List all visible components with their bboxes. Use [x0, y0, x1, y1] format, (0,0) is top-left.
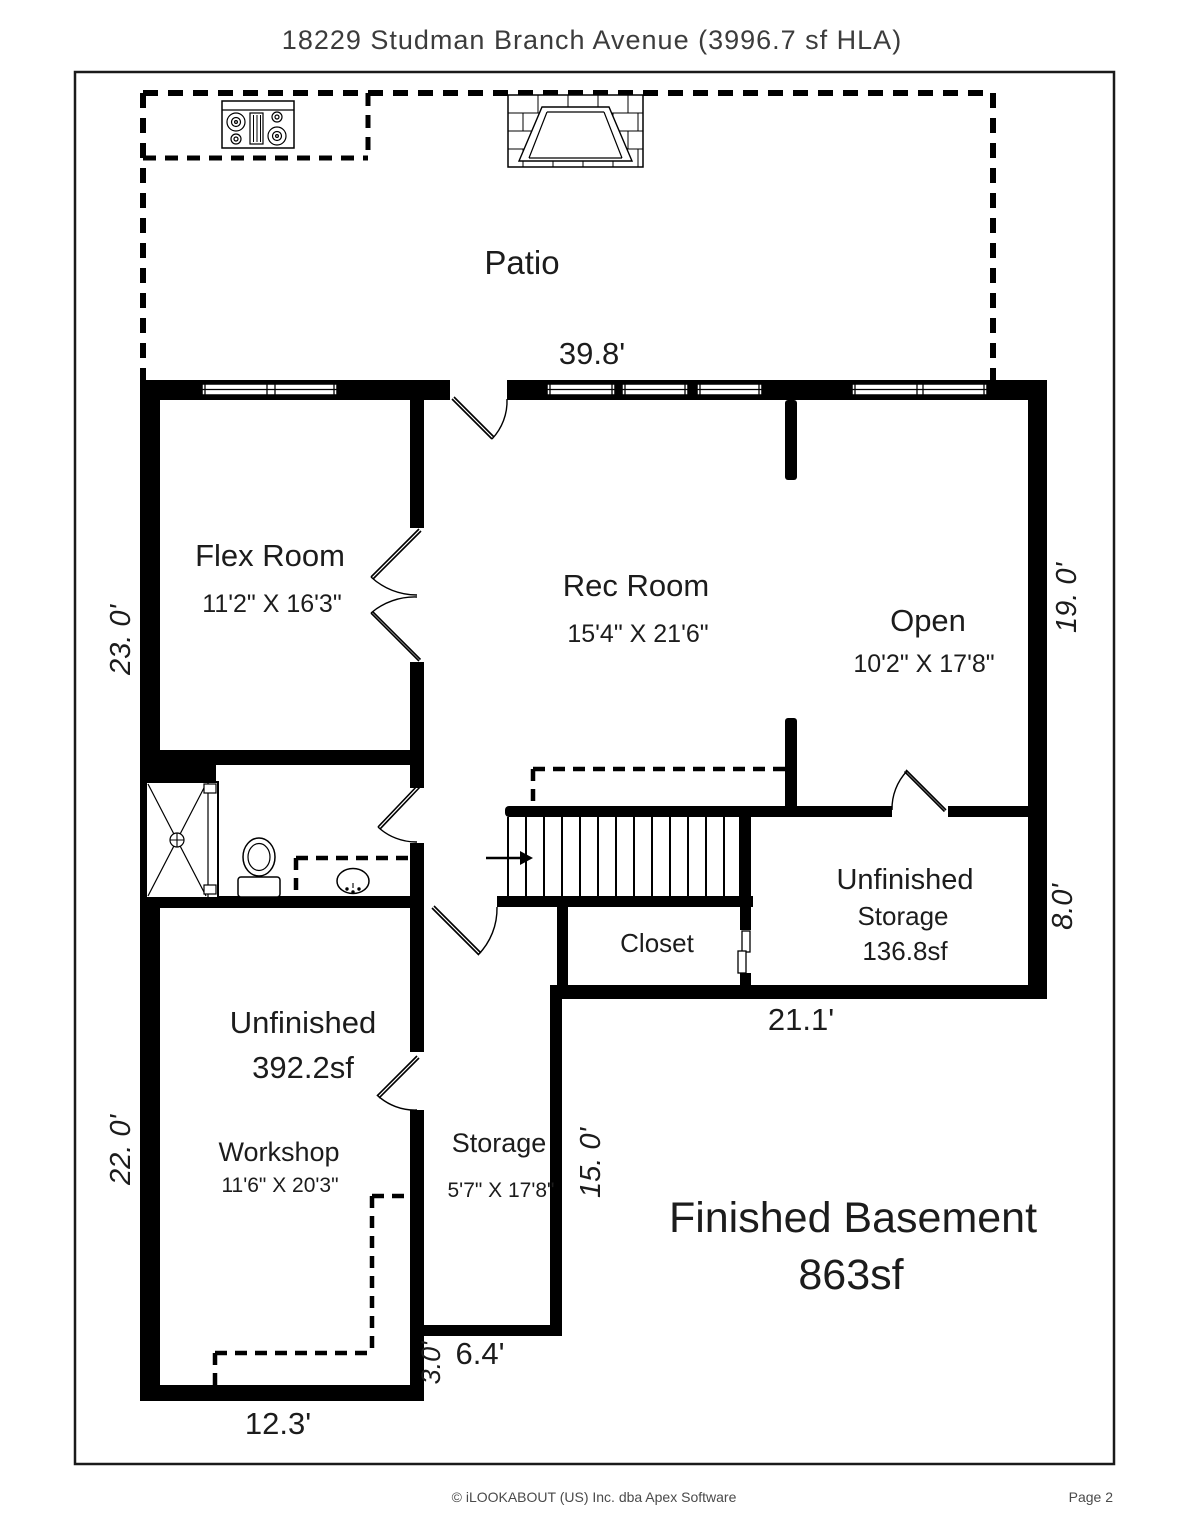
dim-notch: 3.0' [416, 1341, 446, 1385]
stairs-top-rail [505, 806, 753, 817]
dim-storage-height: 15. 0' [575, 1127, 607, 1198]
storage-room-top-wall-right [948, 806, 1047, 817]
storage-label: Storage [452, 1128, 547, 1158]
footer-copyright: © iLOOKABOUT (US) Inc. dba Apex Software [452, 1489, 737, 1505]
windows [202, 383, 987, 396]
entry-door-opening [450, 380, 507, 400]
rec-open-stub-upper [785, 400, 797, 480]
dim-bottom-left: 12.3' [245, 1406, 311, 1441]
unfinished-storage-label-1: Unfinished [836, 864, 973, 896]
closet-label: Closet [620, 928, 694, 958]
stairs-bottom-rail [497, 896, 753, 907]
storage-room-door-swing [892, 770, 946, 812]
closet-bifold-door [738, 931, 750, 973]
stairs [486, 817, 740, 896]
shower-top-wall [140, 765, 216, 783]
unfinished-label-1: Unfinished [230, 1005, 376, 1040]
workshop-label: Workshop [218, 1137, 339, 1167]
bath-workshop-divider [410, 843, 424, 1052]
unfinished-storage-label-3: 136.8sf [862, 936, 948, 966]
rec-room-label: Rec Room [563, 568, 709, 603]
room-labels: Patio Flex Room 11'2" X 16'3" Rec Room 1… [195, 244, 1037, 1299]
workshop-door-swing [377, 1056, 419, 1110]
flex-room-dims: 11'2" X 16'3" [202, 590, 341, 618]
storage-bottom-wall [410, 1325, 562, 1336]
storage-room-top-wall-left [741, 806, 892, 817]
flex-double-door-swing [371, 529, 421, 661]
toilet-icon [238, 838, 280, 897]
page-title: 18229 Studman Branch Avenue (3996.7 sf H… [282, 25, 902, 55]
flex-room-label: Flex Room [195, 538, 345, 573]
closet-right-wall-upper [740, 817, 751, 930]
unfinished-storage-label-2: Storage [857, 901, 948, 931]
rec-room-dims: 15'4" X 21'6" [567, 620, 708, 648]
open-room-label: Open [890, 603, 966, 638]
right-section-bottom-wall [550, 985, 1047, 999]
dim-left-upper: 23. 0' [105, 604, 137, 676]
bathroom-fixtures [146, 782, 369, 898]
dim-left-lower: 22. 0' [105, 1114, 137, 1186]
shower-icon [146, 782, 218, 898]
patio-label: Patio [484, 244, 559, 281]
entry-door-swing [452, 397, 507, 439]
finished-basement-label-1: Finished Basement [669, 1194, 1037, 1242]
fireplace-icon [508, 95, 643, 167]
page-footer: © iLOOKABOUT (US) Inc. dba Apex Software… [452, 1489, 1114, 1505]
dim-right-upper: 19. 0' [1051, 562, 1083, 633]
open-room-dims: 10'2" X 17'8" [853, 650, 994, 678]
dim-top: 39.8' [559, 336, 625, 371]
closet-right-wall-lower [740, 973, 751, 999]
flex-bottom-wall [140, 750, 424, 765]
dim-storage-width: 6.4' [455, 1336, 504, 1371]
unfinished-door-swing [432, 906, 497, 955]
doors [371, 397, 946, 1110]
rec-open-stub-lower [785, 718, 797, 817]
workshop-bottom-wall [140, 1385, 424, 1401]
flex-bath-divider [410, 662, 424, 788]
dim-bottom-right-section: 21.1' [768, 1002, 834, 1037]
bathroom-door-swing [378, 785, 420, 842]
footer-page-number: Page 2 [1069, 1489, 1114, 1505]
right-wall [1028, 380, 1047, 999]
dim-right-lower: 8.0' [1047, 883, 1079, 930]
workshop-dims: 11'6" X 20'3" [221, 1174, 338, 1197]
grill-icon [222, 101, 294, 148]
closet-left-wall [557, 896, 568, 996]
finished-basement-label-2: 863sf [798, 1251, 904, 1299]
storage-dims: 5'7" X 17'8" [448, 1179, 555, 1202]
floorplan-page: 18229 Studman Branch Avenue (3996.7 sf H… [0, 0, 1187, 1536]
sink-icon [337, 869, 369, 894]
unfinished-label-2: 392.2sf [252, 1050, 354, 1085]
flex-rec-divider [410, 400, 424, 528]
storage-right-wall [550, 996, 562, 1336]
